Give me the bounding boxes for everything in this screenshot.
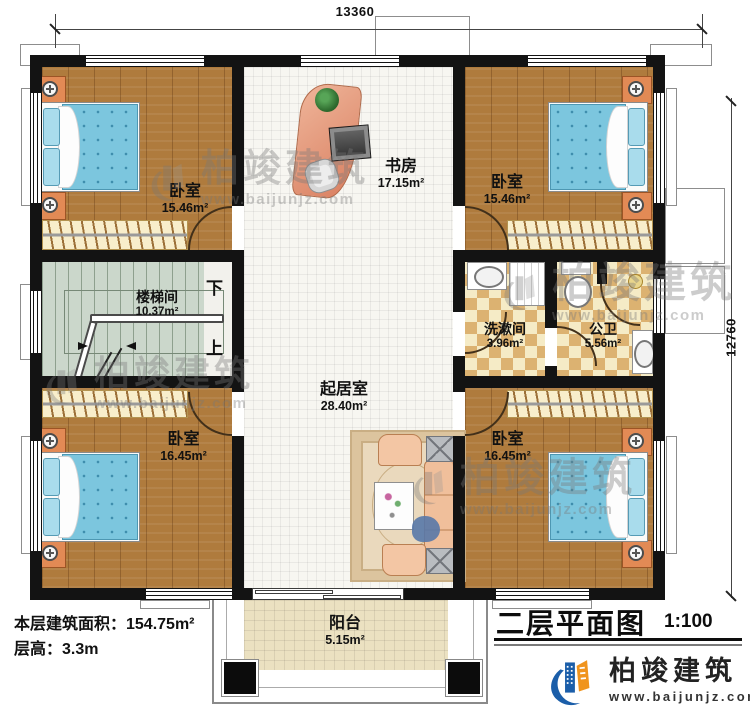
lamp-icon [42,433,58,449]
wall [232,436,244,600]
lamp-icon [628,433,644,449]
window-sill [140,600,210,609]
pillow [43,498,60,536]
sliding-door-panel [255,590,333,594]
title-underline-thin [494,644,742,646]
wall [232,250,244,392]
bay-window-outline [665,266,725,334]
window-sill [666,436,677,554]
window [300,55,400,67]
top-dimension-line [55,29,703,30]
window [527,55,647,67]
right-dimension-label: 12760 [724,303,739,373]
wall [597,262,607,284]
lamp-icon [628,197,644,213]
stair-down-label: 下 [206,274,223,299]
floor-plan-sheet: 13360 12760 下 上 [0,0,750,721]
window [653,92,665,204]
computer-monitor-icon [329,124,372,161]
nightstand [622,540,652,568]
room-label-bedroom-tl: 卧室 15.46m² [130,183,240,215]
sliding-door-panel [323,595,401,599]
window [653,440,665,552]
room-label-toilet: 公卫 5.56m² [560,322,646,351]
room-label-living: 起居室 28.40m² [299,381,389,413]
plant-icon [315,88,339,112]
side-table [426,436,454,462]
window [653,278,665,334]
sink-icon [474,266,504,288]
wall [545,262,557,328]
pillow [628,458,645,496]
wall [30,376,244,388]
coffee-table [374,482,414,530]
wardrobe [42,390,188,418]
window [145,588,233,600]
roof-bay-outline [375,16,470,60]
window [30,440,42,552]
window-sill [666,88,677,206]
toilet-icon [564,276,592,308]
room-label-stairwell: 楼梯间 10.37m² [112,290,202,319]
room-label-bedroom-bl: 卧室 16.45m² [136,431,231,463]
floor-area-note: 本层建筑面积：154.75m² [14,610,195,634]
room-label-bedroom-br: 卧室 16.45m² [460,431,555,463]
pillow [43,148,60,186]
lamp-icon [42,545,58,561]
window [30,290,42,354]
pillow [628,148,645,186]
room-label-bedroom-tr: 卧室 15.46m² [462,174,552,206]
sliding-door [252,588,404,600]
room-label-study: 书房 17.15m² [356,158,446,190]
room-label-balcony: 阳台 5.15m² [305,615,385,647]
toilet-tank [561,262,591,275]
wardrobe [507,390,653,418]
figure [412,516,440,542]
bed-blanket [606,456,628,538]
column [222,660,258,696]
wardrobe [42,220,188,250]
floor-height-note: 层高：3.3m [14,635,98,659]
nightstand [622,192,652,220]
brand-name: 柏竣建筑 [609,658,750,685]
lamp-icon [42,197,58,213]
nightstand [622,76,652,104]
pillow [43,458,60,496]
armchair [382,544,426,576]
wardrobe [507,220,653,250]
lamp-icon [42,81,58,97]
window [30,92,42,204]
column [446,660,482,696]
window [85,55,205,67]
stair-direction-arrow [126,342,136,350]
top-dimension-label: 13360 [320,4,390,19]
title-underline [494,638,742,641]
armchair [378,434,422,466]
stair-up-label: 上 [206,334,223,359]
shower-icon [509,262,545,306]
wall [453,250,665,262]
pillow [43,108,60,146]
sheet-title: 二层平面图 [496,602,646,642]
pillow [628,498,645,536]
room-label-washroom: 洗漱间 3.96m² [462,322,548,351]
side-table [426,548,454,574]
sheet-scale: 1:100 [664,611,713,633]
brand-logo-icon [543,652,601,710]
pillow [628,108,645,146]
stair-direction-arrow [78,342,88,350]
brand-logo: 柏竣建筑 www.baijunjz.com [543,652,750,710]
wall [30,250,244,262]
brand-url: www.baijunjz.com [609,689,750,704]
brand-text: 柏竣建筑 www.baijunjz.com [609,658,750,704]
wall [545,366,557,376]
wall [453,376,665,388]
lamp-icon [628,81,644,97]
lamp-icon [628,545,644,561]
window [495,588,590,600]
bed-blanket [606,106,628,188]
